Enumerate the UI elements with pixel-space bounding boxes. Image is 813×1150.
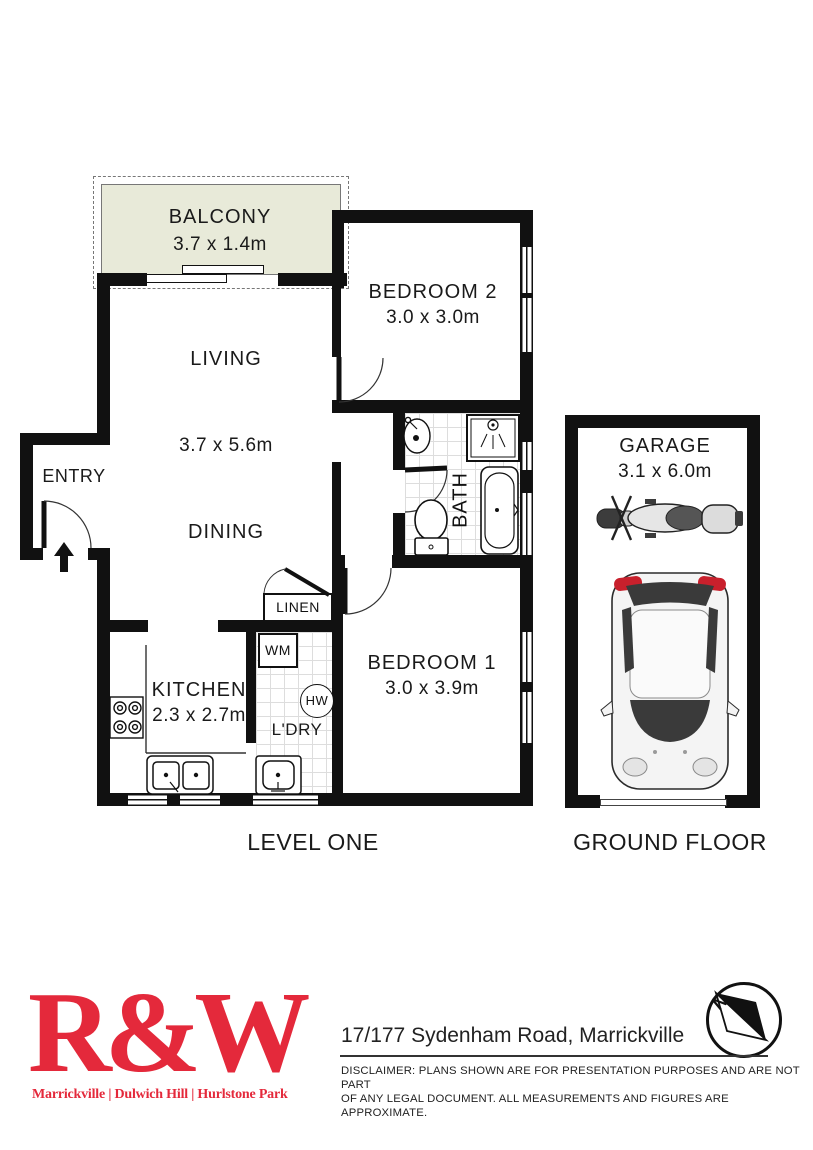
property-address: 17/177 Sydenham Road, Marrickville xyxy=(341,1024,684,1048)
kitchen-sink-icon xyxy=(147,756,213,794)
bedroom2-door xyxy=(339,357,383,402)
address-underline xyxy=(340,1055,768,1057)
basin-icon xyxy=(404,417,430,453)
entry-arrow-icon xyxy=(54,542,74,572)
agency-tagline: Marrickville | Dulwich Hill | Hurlstone … xyxy=(32,1087,288,1103)
kitchen-counter xyxy=(146,645,246,753)
entry-door xyxy=(44,501,91,548)
car-icon xyxy=(601,573,739,789)
linen-door xyxy=(264,569,329,595)
disclaimer-line2: OF ANY LEGAL DOCUMENT. ALL MEASUREMENTS … xyxy=(341,1092,813,1120)
agency-logo: R&W xyxy=(28,984,303,1083)
bathtub-icon xyxy=(481,467,518,554)
toilet-icon xyxy=(415,500,448,555)
disclaimer-line1: DISCLAIMER: PLANS SHOWN ARE FOR PRESENTA… xyxy=(341,1064,813,1092)
floorplan-page: BALCONY 3.7 x 1.4m LINEN WM HW xyxy=(0,0,813,1150)
motorcycle-icon xyxy=(597,496,743,540)
shower-icon xyxy=(467,415,519,461)
laundry-tub-icon xyxy=(256,756,301,794)
disclaimer: DISCLAIMER: PLANS SHOWN ARE FOR PRESENTA… xyxy=(341,1064,813,1120)
stove-icon xyxy=(110,697,143,738)
bedroom1-door xyxy=(345,568,391,614)
